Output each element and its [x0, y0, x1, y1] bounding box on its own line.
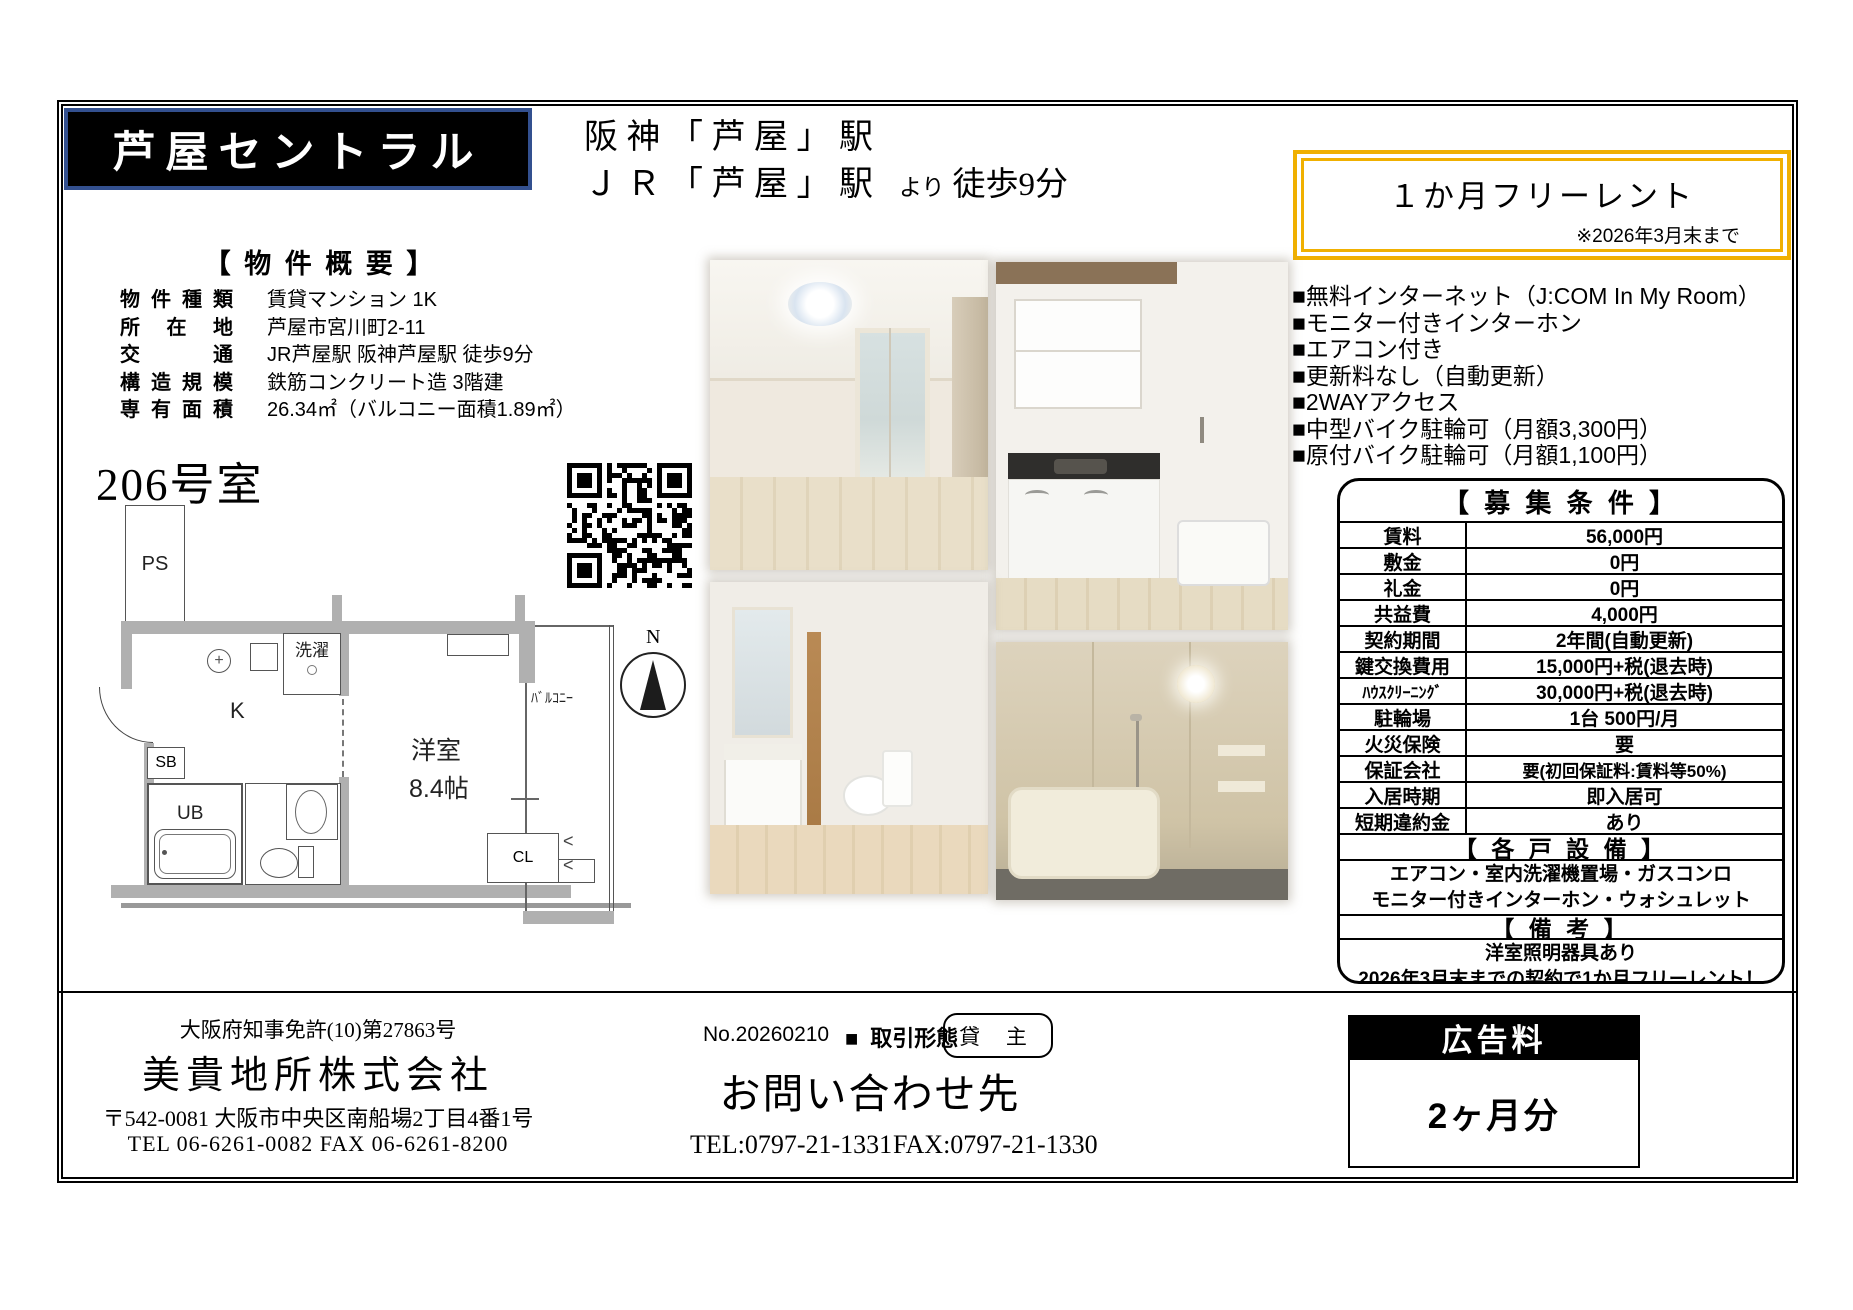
photo-mirror — [732, 607, 793, 738]
overview-row-label: 物件種類 — [120, 283, 233, 312]
conditions-row: 契約期間2年間(自動更新) — [1340, 625, 1782, 651]
floorplan-vanity-counter — [286, 784, 338, 840]
photo-shelf — [1218, 745, 1265, 755]
floorplan-ps-room: PS — [125, 505, 185, 623]
overview-table: 物件種類賃貸マンション 1K 所在地芦屋市宮川町2-11 交通JR芦屋駅 阪神芦… — [120, 284, 576, 422]
floorplan-kitchen-label: K — [230, 698, 245, 724]
station-walk-time: 徒歩9分 — [953, 167, 1069, 203]
floorplan-wall-line — [535, 625, 613, 627]
deal-type: ■取引形態 — [845, 1021, 958, 1053]
photo-washroom — [710, 582, 988, 894]
conditions-row-value: 56,000円 — [1467, 523, 1782, 547]
property-title-box: 芦屋セントラル — [64, 108, 532, 190]
overview-row-label: 専有面積 — [120, 393, 233, 422]
floorplan-laundry-box: 洗濯 — [283, 633, 341, 695]
photo-bath-light — [1177, 665, 1215, 703]
photo-cabinet-handle — [1084, 490, 1108, 500]
floorplan-washroom — [245, 783, 341, 885]
photo-closet — [952, 297, 988, 483]
floorplan-room-size: 8.4帖 — [409, 769, 469, 805]
square-bullet-icon: ■ — [845, 1026, 858, 1051]
conditions-row: ﾊｳｽｸﾘｰﾆﾝｸﾞ30,000円+税(退去時) — [1340, 677, 1782, 703]
floorplan-entry-door-arc — [99, 687, 153, 743]
conditions-row-label: 短期違約金 — [1340, 809, 1467, 833]
photo-cabinet-shelf — [1014, 350, 1142, 352]
company-tel-fax: TEL 06-6261-0082 FAX 06-6261-8200 — [58, 1131, 578, 1157]
feature-item: ■モニター付きインターホン — [1292, 310, 1761, 337]
floorplan-stove-icon: + — [207, 649, 231, 673]
conditions-row-value: 要 — [1467, 731, 1782, 755]
floorplan-wall — [121, 621, 132, 689]
floorplan-bathtub-drain-icon — [162, 850, 167, 855]
photo-toilet-tank — [882, 750, 913, 806]
overview-row-value: 芦屋市宮川町2-11 — [267, 311, 426, 340]
floorplan-balcony-label: ﾊﾞﾙｺﾆｰ — [531, 688, 573, 708]
floorplan-toilet-bowl-icon — [260, 848, 298, 878]
floorplan-closet-label: CL — [513, 849, 533, 867]
company-address: 〒542-0081 大阪市中央区南船場2丁目4番1号 — [58, 1101, 578, 1133]
license-number: 大阪府知事免許(10)第27863号 — [58, 1014, 578, 1044]
floorplan-sliding-door — [342, 699, 344, 777]
photo-kitchen — [996, 262, 1288, 630]
conditions-table: 【 募 集 条 件 】 賃料56,000円 敷金0円 礼金0円 共益費4,000… — [1337, 478, 1785, 984]
photo-upper-cabinet — [1014, 299, 1142, 409]
station-line-jr: Ｊ Ｒ 「 芦 屋 」 駅より徒歩9分 — [584, 161, 1068, 211]
conditions-row-label: 保証会社 — [1340, 757, 1467, 781]
conditions-row-value: 30,000円+税(退去時) — [1467, 679, 1782, 703]
conditions-row-value: 2年間(自動更新) — [1467, 627, 1782, 651]
conditions-row-label: 礼金 — [1340, 575, 1467, 599]
feature-item: ■2WAYアクセス — [1292, 389, 1761, 416]
photo-sink — [1054, 459, 1107, 474]
floorplan-folding-door-icon: < — [563, 831, 574, 852]
photo-laundry-pan — [1177, 520, 1270, 586]
overview-row-label: 構造規模 — [120, 366, 233, 395]
photo-faucet — [1200, 417, 1204, 443]
conditions-row-label: 駐輪場 — [1340, 705, 1467, 729]
conditions-row: 駐輪場1台 500円/月 — [1340, 703, 1782, 729]
floorplan-sb-box: SB — [147, 747, 185, 779]
overview-row-label: 交通 — [120, 338, 233, 367]
overview-row: 物件種類賃貸マンション 1K — [120, 284, 576, 312]
equipment-line: エアコン・室内洗濯機置場・ガスコンロ — [1340, 862, 1782, 888]
document-number: No.20260210 — [703, 1023, 829, 1047]
photo-wood-partition — [807, 632, 821, 832]
photo-vanity-counter — [724, 744, 802, 760]
free-rent-label: １か月フリーレント — [1304, 171, 1780, 216]
photo-shelf — [1218, 781, 1265, 791]
remarks-heading: 【 備 考 】 — [1340, 914, 1782, 938]
floorplan-bathtub-inner — [159, 834, 231, 874]
photo-living-room — [710, 260, 988, 570]
ad-fee-header: 広告料 — [1348, 1015, 1640, 1060]
photo-window-frame — [889, 328, 891, 483]
floorplan-wall — [515, 595, 525, 621]
photo-ceiling-trim — [996, 262, 1177, 284]
remarks-line: 2026年3月末までの契約で1か月フリーレント！ — [1340, 967, 1782, 984]
floorplan-room-label: 洋室 — [411, 731, 461, 767]
floorplan-ub-label: UB — [177, 803, 203, 825]
overview-row-value: 賃貸マンション 1K — [267, 283, 437, 312]
feature-item: ■更新料なし（自動更新） — [1292, 363, 1761, 390]
feature-item: ■エアコン付き — [1292, 336, 1761, 363]
conditions-row-label: 火災保険 — [1340, 731, 1467, 755]
floor-plan: PS + 洗濯 K SB UB — [95, 503, 655, 1003]
floorplan-room-window — [447, 634, 509, 656]
floorplan-ub-room: UB — [147, 783, 243, 885]
contact-tel: TEL:0797-21-1331 — [690, 1130, 892, 1160]
photo-shower-head — [1130, 714, 1142, 721]
floorplan-laundry-label: 洗濯 — [284, 636, 340, 661]
overview-row: 所在地芦屋市宮川町2-11 — [120, 312, 576, 340]
property-title: 芦屋セントラル — [113, 118, 484, 180]
feature-item: ■中型バイク駐輪可（月額3,300円） — [1292, 416, 1761, 443]
floorplan-ps-label: PS — [142, 553, 169, 576]
station-line-hanshin: 阪 神 「 芦 屋 」 駅 — [584, 114, 1068, 161]
station-access: 阪 神 「 芦 屋 」 駅 Ｊ Ｒ 「 芦 屋 」 駅より徒歩9分 — [584, 114, 1068, 211]
conditions-row: 保証会社要(初回保証料:賃料等50%) — [1340, 755, 1782, 781]
overview-row-value: 鉄筋コンクリート造 3階建 — [267, 366, 504, 395]
conditions-row: 敷金0円 — [1340, 547, 1782, 573]
floorplan-wall — [332, 595, 342, 621]
conditions-row-label: 賃料 — [1340, 523, 1467, 547]
free-rent-inner-border: １か月フリーレント ※2026年3月末まで — [1301, 158, 1783, 252]
conditions-row-value: 0円 — [1467, 549, 1782, 573]
floorplan-window-tick — [511, 798, 539, 800]
floorplan-bathtub — [154, 829, 236, 879]
floorplan-wall — [111, 885, 571, 898]
conditions-row-value: 0円 — [1467, 575, 1782, 599]
conditions-row-value: 1台 500円/月 — [1467, 705, 1782, 729]
flyer-page: 芦屋セントラル 阪 神 「 芦 屋 」 駅 Ｊ Ｒ 「 芦 屋 」 駅より徒歩9… — [0, 0, 1853, 1310]
station-more: より — [899, 175, 945, 200]
conditions-row-label: 共益費 — [1340, 601, 1467, 625]
remarks-lines: 洋室照明器具あり 2026年3月末までの契約で1か月フリーレント！ — [1340, 938, 1782, 984]
equipment-lines: エアコン・室内洗濯機置場・ガスコンロ モニター付きインターホン・ウォシュレット — [1340, 859, 1782, 914]
contact-heading: お問い合わせ先 — [650, 1060, 1090, 1120]
photo-wood-floor — [710, 825, 988, 894]
overview-heading: 【 物 件 概 要 】 — [140, 242, 500, 281]
floorplan-balcony-rail — [609, 625, 614, 917]
free-rent-banner: １か月フリーレント ※2026年3月末まで — [1293, 150, 1791, 260]
photo-balcony-window — [855, 328, 930, 483]
conditions-row: 火災保険要 — [1340, 729, 1782, 755]
floorplan-laundry-drain-icon — [307, 665, 317, 675]
conditions-row: 礼金0円 — [1340, 573, 1782, 599]
conditions-row: 入居時期即入居可 — [1340, 781, 1782, 807]
conditions-row-value: 15,000円+税(退去時) — [1467, 653, 1782, 677]
feature-item: ■無料インターネット（J:COM In My Room） — [1292, 283, 1761, 310]
conditions-row-value: 要(初回保証料:賃料等50%) — [1467, 757, 1782, 781]
floorplan-wall — [523, 911, 614, 924]
conditions-row: 共益費4,000円 — [1340, 599, 1782, 625]
photo-bathroom — [996, 642, 1288, 900]
free-rent-note: ※2026年3月末まで — [1576, 221, 1740, 248]
conditions-heading: 【 募 集 条 件 】 — [1340, 481, 1782, 521]
floorplan-toilet-tank-icon — [298, 846, 314, 878]
conditions-row-label: 契約期間 — [1340, 627, 1467, 651]
floorplan-closet-box: CL — [487, 833, 559, 883]
floorplan-basin-icon — [295, 790, 327, 834]
overview-row: 専有面積26.34㎡（バルコニー面積1.89㎡） — [120, 394, 576, 422]
conditions-row: 賃料56,000円 — [1340, 521, 1782, 547]
floorplan-wall — [519, 621, 535, 683]
photo-wood-floor — [710, 477, 988, 570]
photo-ceiling — [710, 260, 988, 378]
deal-type-value-badge: 貸 主 — [943, 1013, 1053, 1058]
overview-row-value: 26.34㎡（バルコニー面積1.89㎡） — [267, 393, 576, 422]
ad-fee-value: 2ヶ月分 — [1348, 1060, 1640, 1168]
conditions-row-label: 鍵交換費用 — [1340, 653, 1467, 677]
photo-ceiling-light — [788, 282, 852, 326]
conditions-row-value: 4,000円 — [1467, 601, 1782, 625]
feature-item: ■原付バイク駐輪可（月額1,100円） — [1292, 442, 1761, 469]
overview-row: 交通JR芦屋駅 阪神芦屋駅 徒歩9分 — [120, 339, 576, 367]
photo-bathtub — [1008, 787, 1160, 880]
overview-row-label: 所在地 — [120, 311, 233, 340]
equipment-heading: 【 各 戸 設 備 】 — [1340, 833, 1782, 859]
conditions-row-label: 入居時期 — [1340, 783, 1467, 807]
floorplan-folding-door-icon: < — [563, 855, 574, 876]
conditions-row-label: ﾊｳｽｸﾘｰﾆﾝｸﾞ — [1340, 679, 1467, 703]
company-name: 美貴地所株式会社 — [58, 1044, 578, 1099]
photo-wood-floor — [996, 578, 1288, 630]
floorplan-sb-label: SB — [155, 754, 176, 772]
contact-fax: FAX:0797-21-1330 — [893, 1130, 1098, 1160]
floorplan-wall-line — [121, 903, 631, 908]
conditions-row-label: 敷金 — [1340, 549, 1467, 573]
overview-row: 構造規模鉄筋コンクリート造 3階建 — [120, 367, 576, 395]
overview-row-value: JR芦屋駅 阪神芦屋駅 徒歩9分 — [267, 338, 534, 367]
feature-list: ■無料インターネット（J:COM In My Room） ■モニター付きインター… — [1292, 283, 1761, 469]
remarks-line: 洋室照明器具あり — [1340, 941, 1782, 967]
photo-wall — [710, 378, 988, 483]
floorplan-sink-icon — [250, 643, 278, 671]
conditions-row-value: 即入居可 — [1467, 783, 1782, 807]
conditions-row: 鍵交換費用15,000円+税(退去時) — [1340, 651, 1782, 677]
